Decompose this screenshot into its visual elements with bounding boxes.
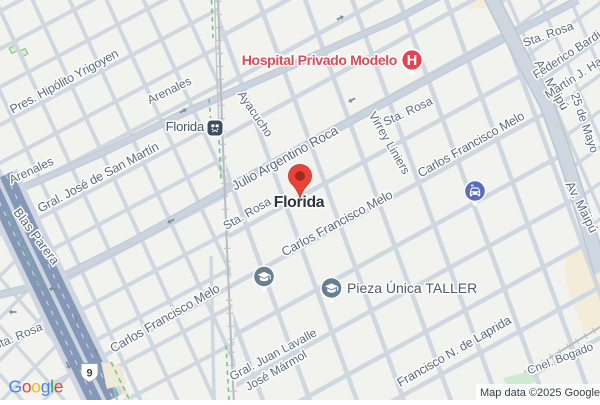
svg-text:Florida: Florida: [166, 119, 205, 134]
svg-text:Google: Google: [9, 377, 64, 397]
svg-text:Hospital Privado Modelo: Hospital Privado Modelo: [242, 52, 398, 68]
svg-text:Map data ©2025 Google: Map data ©2025 Google: [480, 387, 600, 399]
svg-text:9: 9: [86, 368, 92, 380]
svg-text:H: H: [407, 53, 417, 69]
svg-text:Pieza Única TALLER: Pieza Única TALLER: [347, 280, 477, 296]
